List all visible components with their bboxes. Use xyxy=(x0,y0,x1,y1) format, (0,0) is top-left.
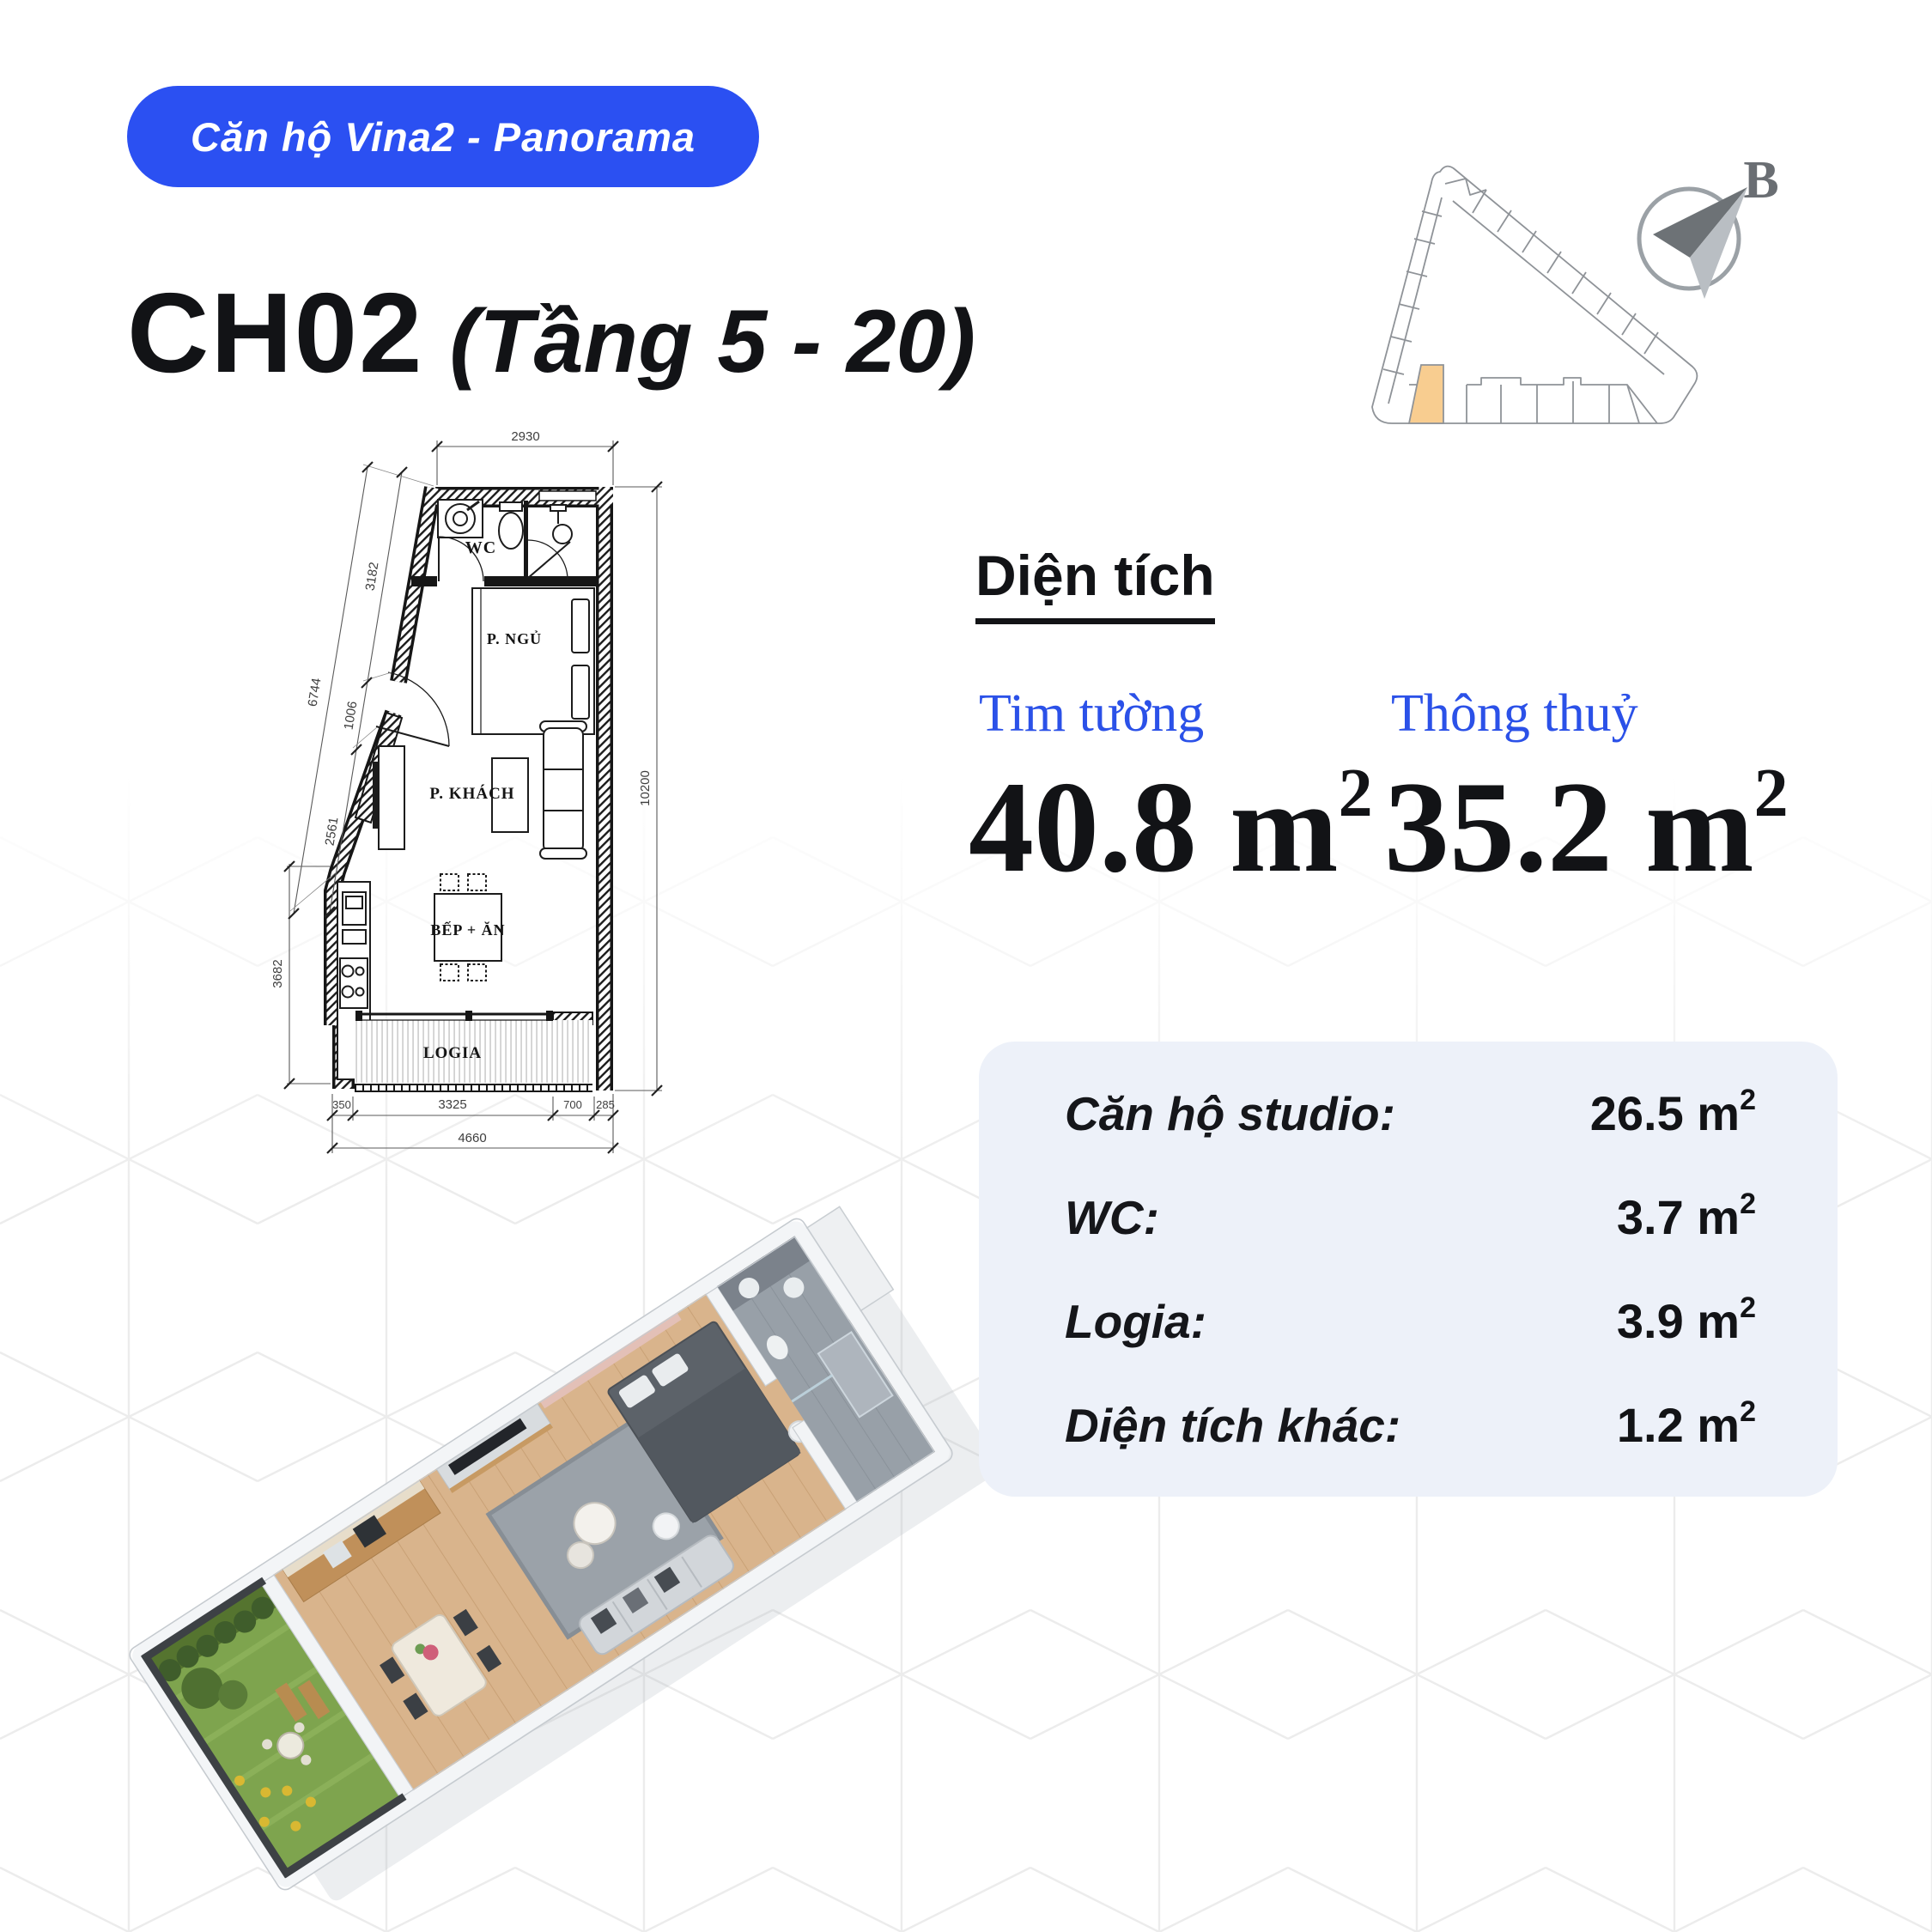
dim-left-total: 6744 xyxy=(306,677,325,708)
room-label-living: P. KHÁCH xyxy=(429,784,514,803)
dim-bottom-seg2: 3325 xyxy=(438,1097,466,1112)
area-value-thong-thuy: 35.2 m2 xyxy=(1384,752,1789,902)
compass-icon xyxy=(1639,187,1747,299)
room-label-bedroom: P. NGỦ xyxy=(487,629,542,647)
area-section-heading: Diện tích xyxy=(975,543,1215,624)
card-row-wc: WC: 3.7 m2 xyxy=(1065,1189,1756,1245)
dim-bottom-seg4: 285 xyxy=(596,1098,615,1111)
area-details-card: Căn hộ studio: 26.5 m2 WC: 3.7 m2 Logia:… xyxy=(979,1042,1838,1497)
room-label-logia: LOGIA xyxy=(423,1044,482,1062)
project-badge: Căn hộ Vina2 - Panorama xyxy=(127,86,759,187)
dim-left-seg1: 3182 xyxy=(363,561,382,592)
card-row-logia: Logia: 3.9 m2 xyxy=(1065,1293,1756,1349)
dim-left-vert: 3682 xyxy=(270,959,285,987)
dim-left-seg3: 2561 xyxy=(323,816,342,847)
building-key-plan: B xyxy=(1352,101,1820,471)
dim-left-seg2: 1006 xyxy=(342,700,361,731)
area-value-tim-tuong: 40.8 m2 xyxy=(969,752,1373,902)
project-badge-label: Căn hộ Vina2 - Panorama xyxy=(191,113,696,161)
page-title: CH02 (Tầng 5 - 20) xyxy=(127,268,975,398)
apartment-3d-render xyxy=(112,1176,987,1906)
floor-plan-drawing: WC P. NGỦ P. KHÁCH BẾP + ĂN LOGIA 2930 1… xyxy=(251,414,706,1204)
dim-right: 10200 xyxy=(638,770,653,806)
dim-top: 2930 xyxy=(511,429,539,444)
dim-bottom-total: 4660 xyxy=(458,1131,486,1145)
room-label-wc: WC xyxy=(465,538,496,557)
area-col-label-tim-tuong: Tim tường xyxy=(979,683,1204,744)
card-row-studio: Căn hộ studio: 26.5 m2 xyxy=(1065,1085,1756,1141)
area-col-label-thong-thuy: Thông thuỷ xyxy=(1391,683,1638,744)
room-label-kitchen: BẾP + ĂN xyxy=(430,920,505,939)
card-row-other: Diện tích khác: 1.2 m2 xyxy=(1065,1397,1756,1453)
dim-bottom-seg3: 700 xyxy=(563,1098,582,1111)
unit-code: CH02 xyxy=(127,268,423,398)
compass-north-label: B xyxy=(1743,151,1778,210)
dim-bottom-seg1: 350 xyxy=(332,1098,351,1111)
unit-floors: (Tầng 5 - 20) xyxy=(449,291,975,393)
